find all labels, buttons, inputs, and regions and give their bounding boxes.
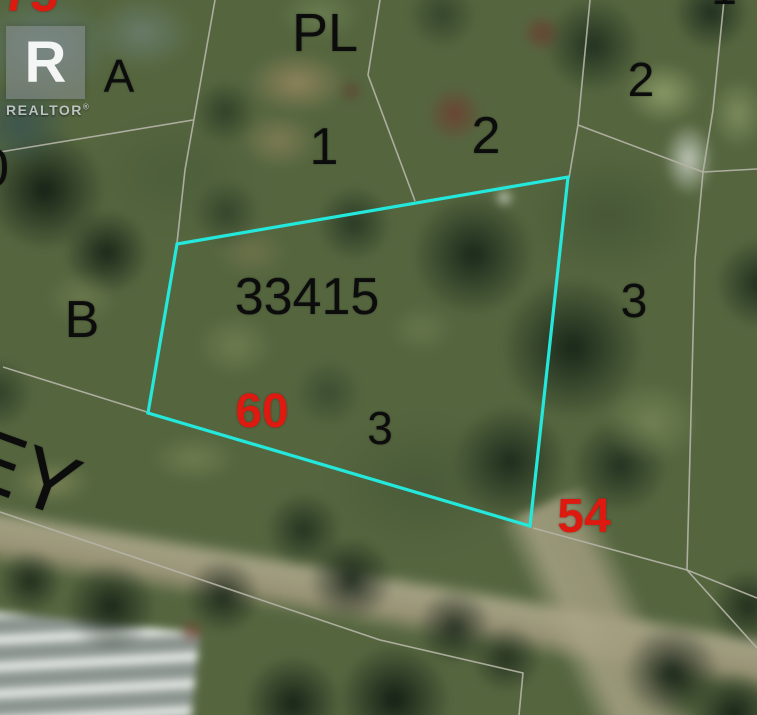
plan-prefix-label: PL xyxy=(292,6,358,60)
lot-2-right-label: 2 xyxy=(628,57,655,105)
street-name-partial: EY xyxy=(0,412,91,532)
block-a-label: A xyxy=(104,53,135,99)
realtor-brand-text: REALTOR xyxy=(6,102,83,118)
dimension-54: 54 xyxy=(557,493,610,541)
digit-partial-left: 0 xyxy=(0,141,9,195)
realtor-r-icon: R xyxy=(25,34,67,92)
lot-1-label: 1 xyxy=(310,121,339,173)
lot-2-label: 2 xyxy=(472,110,501,162)
dimension-75: 75 xyxy=(2,0,58,19)
lot-3-bottom-label: 3 xyxy=(367,405,393,451)
registered-trademark-icon: ® xyxy=(83,102,89,111)
dimension-60: 60 xyxy=(235,388,288,436)
block-b-label: B xyxy=(65,294,100,346)
map-labels: 33415PL12233ABEY01756054 xyxy=(0,0,757,715)
lot-3-right-label: 3 xyxy=(621,278,648,326)
plan-number-label: 33415 xyxy=(235,271,380,323)
realtor-logo: R xyxy=(6,26,85,99)
realtor-brand-label: REALTOR® xyxy=(6,102,89,118)
aerial-parcel-map: 33415PL12233ABEY01756054 R REALTOR® xyxy=(0,0,757,715)
realtor-watermark: R REALTOR® xyxy=(6,26,89,118)
digit-partial-top-right: 1 xyxy=(711,0,737,11)
